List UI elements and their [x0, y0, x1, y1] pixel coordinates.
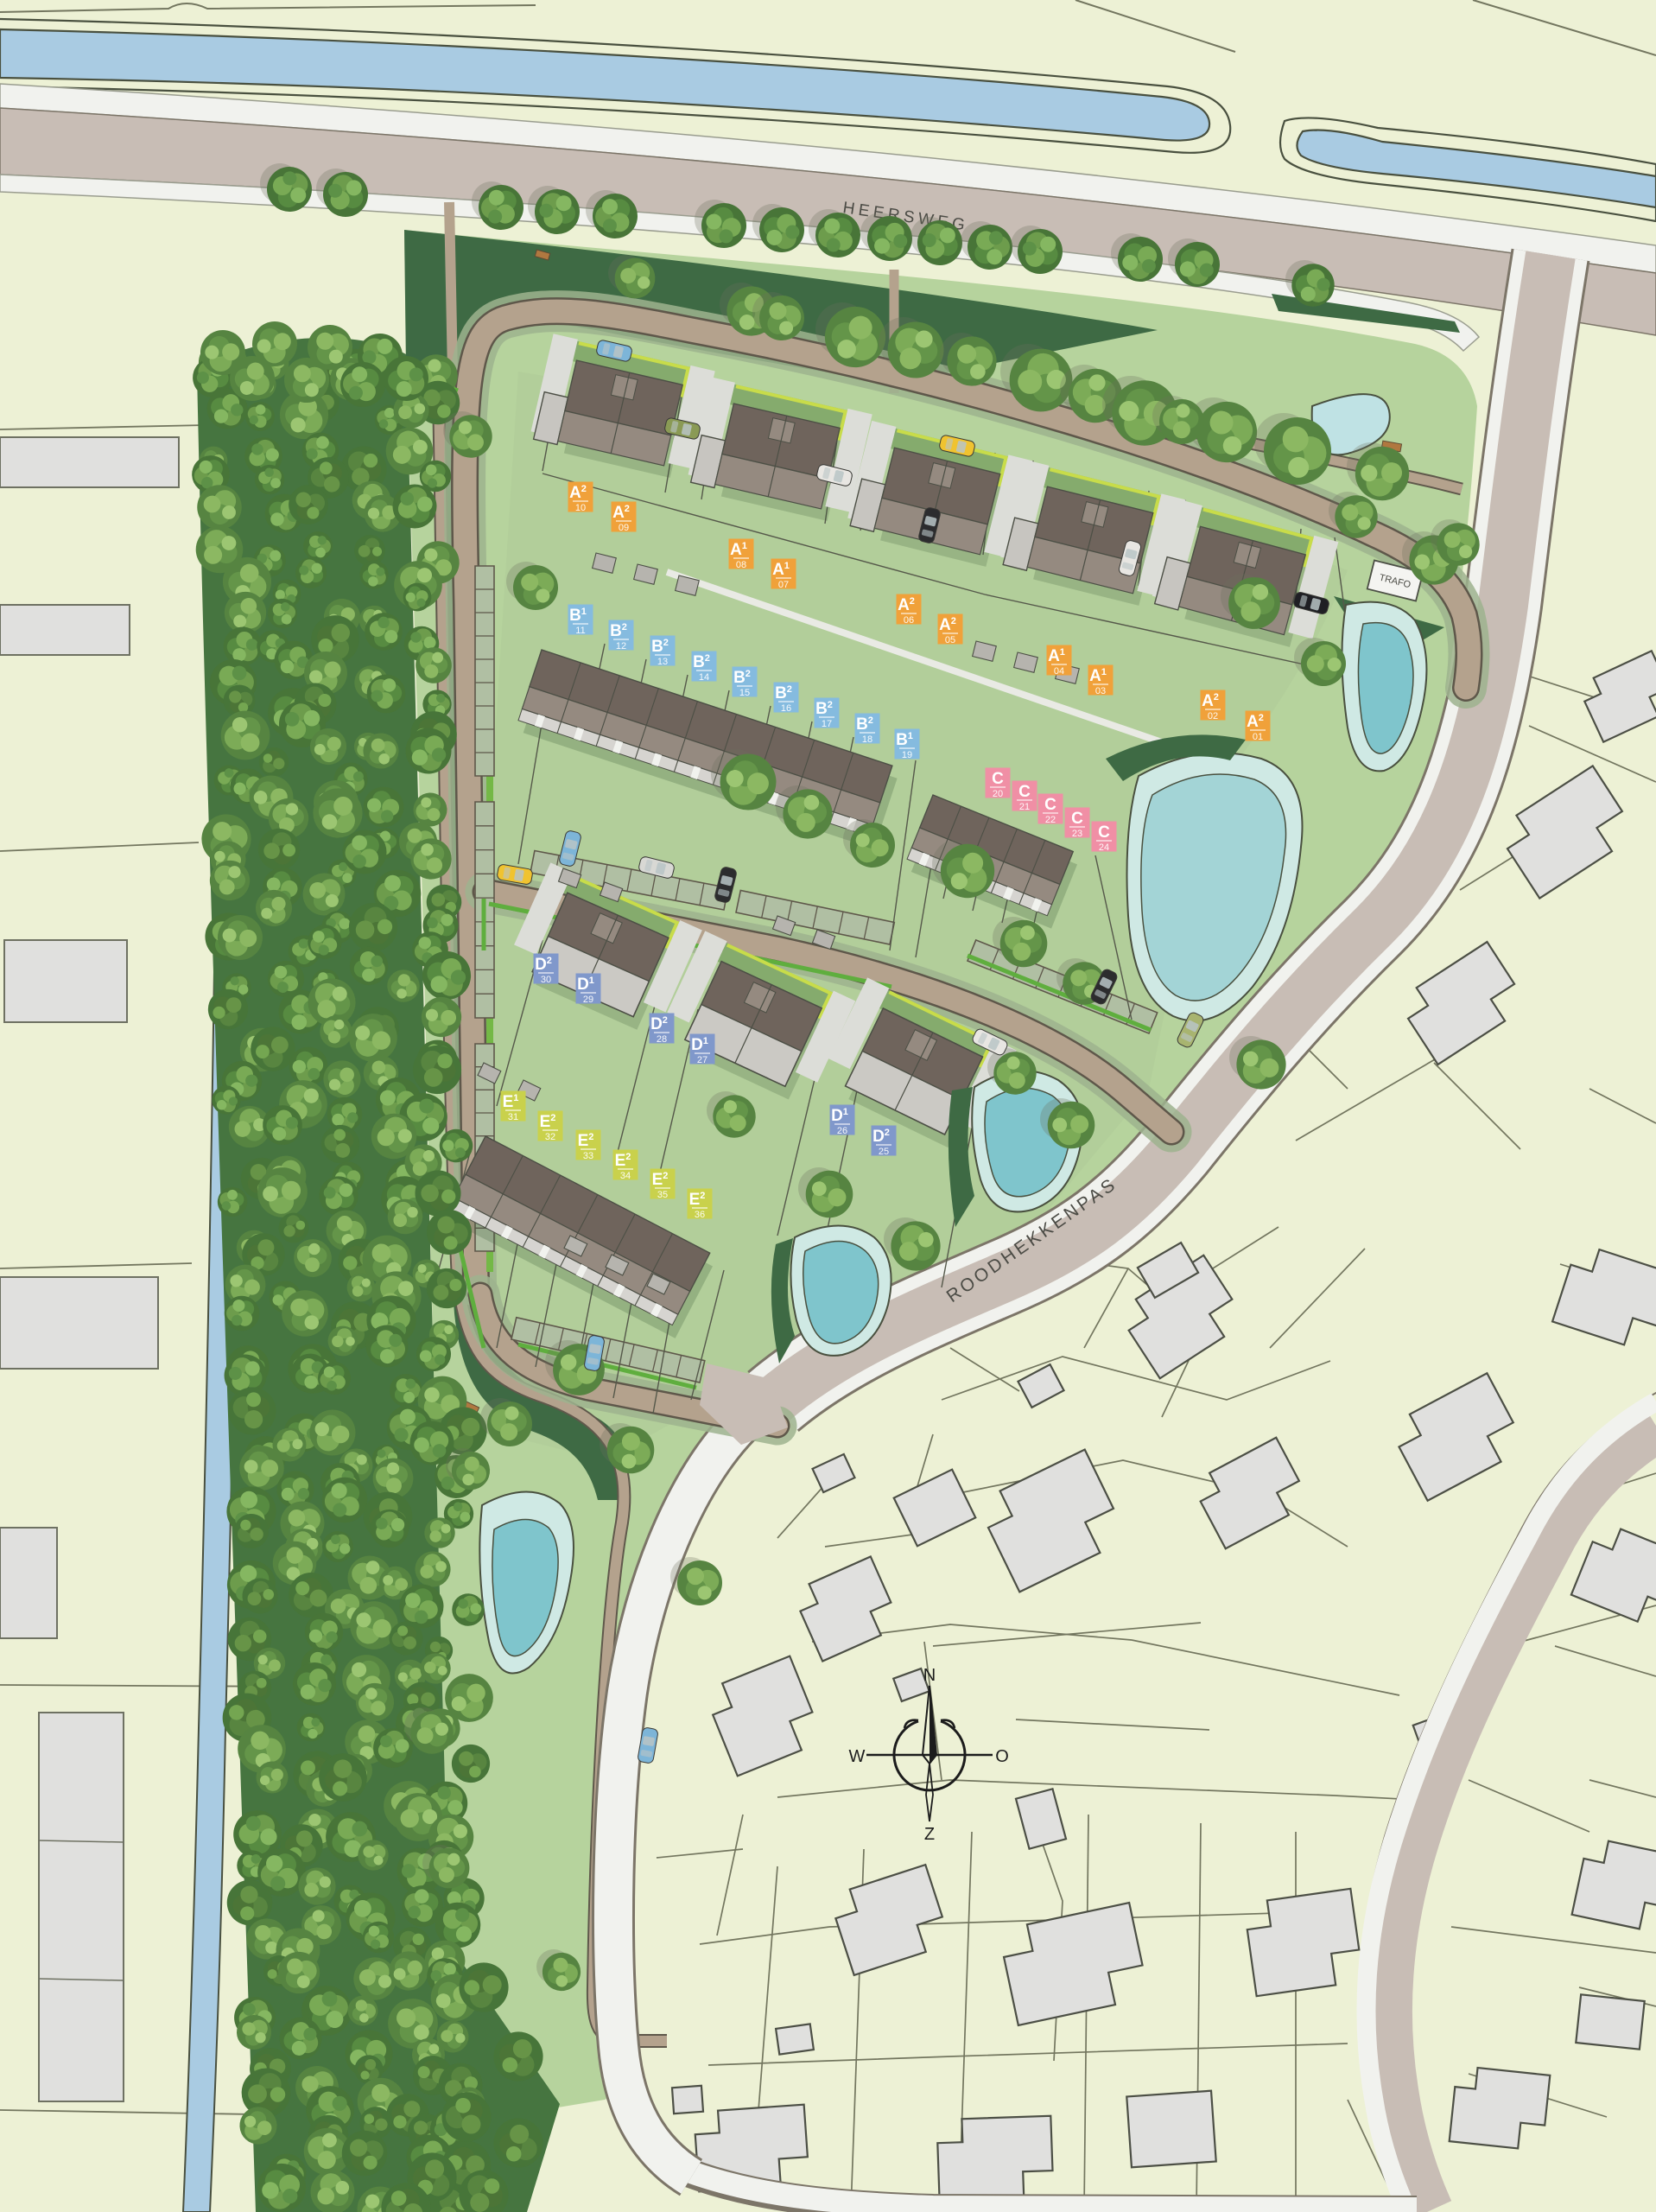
svg-text:17: 17	[822, 719, 832, 729]
svg-text:07: 07	[778, 580, 789, 590]
svg-text:23: 23	[1072, 829, 1082, 839]
svg-text:25: 25	[879, 1147, 889, 1157]
svg-text:C: C	[1071, 810, 1083, 828]
svg-text:26: 26	[837, 1126, 847, 1136]
svg-text:02: 02	[1208, 711, 1218, 721]
svg-text:15: 15	[739, 688, 750, 698]
svg-text:14: 14	[699, 672, 709, 683]
svg-text:18: 18	[862, 734, 872, 745]
svg-text:20: 20	[993, 789, 1003, 799]
svg-text:12: 12	[616, 641, 626, 652]
svg-text:16: 16	[781, 703, 791, 714]
svg-text:C: C	[1018, 783, 1031, 801]
svg-text:24: 24	[1099, 842, 1109, 853]
svg-text:31: 31	[508, 1112, 518, 1122]
svg-text:33: 33	[583, 1151, 593, 1161]
svg-text:28: 28	[657, 1034, 667, 1045]
svg-text:21: 21	[1019, 802, 1030, 812]
svg-text:08: 08	[736, 560, 746, 570]
svg-text:N: N	[923, 1666, 936, 1685]
svg-text:13: 13	[657, 657, 668, 667]
svg-text:36: 36	[695, 1210, 705, 1220]
svg-text:05: 05	[945, 635, 955, 645]
svg-text:C: C	[1098, 823, 1110, 842]
svg-text:O: O	[995, 1747, 1009, 1766]
svg-text:C: C	[1044, 796, 1056, 814]
svg-text:19: 19	[902, 750, 912, 760]
svg-text:22: 22	[1045, 815, 1056, 825]
svg-text:W: W	[849, 1747, 866, 1766]
svg-text:34: 34	[620, 1171, 631, 1181]
svg-text:06: 06	[904, 615, 914, 626]
svg-text:01: 01	[1253, 732, 1263, 742]
svg-text:Z: Z	[924, 1825, 935, 1844]
svg-text:29: 29	[583, 995, 593, 1005]
svg-text:11: 11	[575, 626, 585, 636]
svg-text:35: 35	[657, 1190, 668, 1200]
svg-text:30: 30	[541, 975, 551, 985]
svg-text:10: 10	[575, 503, 586, 513]
svg-text:09: 09	[619, 523, 629, 533]
svg-text:C: C	[992, 770, 1004, 788]
svg-text:32: 32	[545, 1132, 555, 1142]
svg-text:27: 27	[697, 1055, 707, 1065]
svg-text:04: 04	[1054, 666, 1064, 677]
svg-text:03: 03	[1095, 686, 1106, 696]
